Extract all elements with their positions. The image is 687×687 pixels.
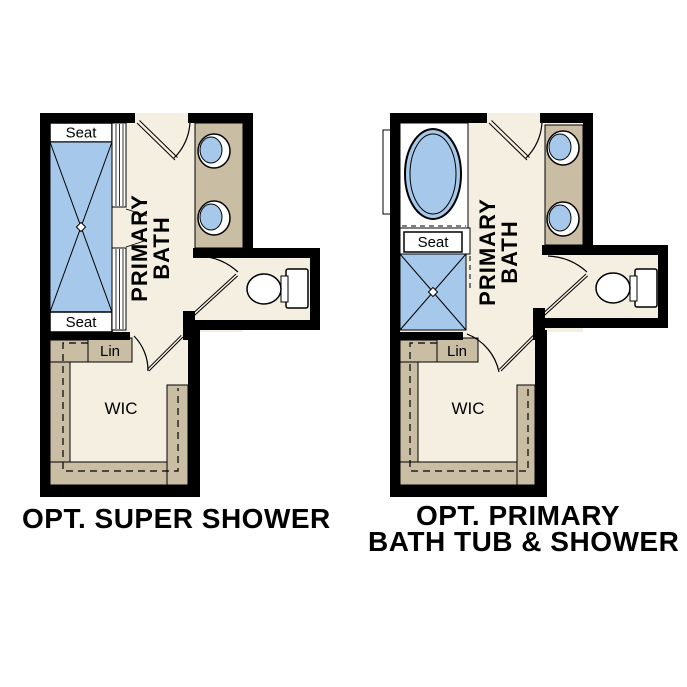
toilet-bowl — [247, 274, 281, 304]
sink-bowl — [200, 204, 222, 230]
entry-doorway — [487, 113, 540, 123]
wic-label: WIC — [451, 399, 484, 418]
toilet-hinge — [281, 276, 288, 302]
toilet-tank — [286, 269, 308, 308]
wall-segment — [583, 113, 593, 255]
floorplan-sheet: Seat Seat Lin WIC PRIMARY BATH — [0, 0, 687, 687]
wic-label: WIC — [104, 399, 137, 418]
wall-segment — [50, 332, 130, 340]
plan-title-super-shower: OPT. SUPER SHOWER — [22, 506, 322, 532]
plan-title-tub-shower: OPT. PRIMARY BATH TUB & SHOWER — [368, 503, 668, 555]
wall-segment — [542, 245, 668, 255]
toilet-hinge — [630, 276, 637, 301]
linen-label: Lin — [447, 343, 467, 360]
wall-segment — [40, 485, 200, 497]
seat-label: Seat — [418, 234, 450, 251]
wall-segment — [400, 332, 463, 340]
toilet-bowl — [596, 273, 630, 303]
wall-segment — [390, 113, 487, 123]
wall-segment — [310, 248, 320, 330]
seat-label: Seat — [66, 125, 98, 142]
vanity-counter — [545, 125, 583, 245]
sink-bowl — [200, 137, 222, 163]
wall-segment — [243, 113, 253, 258]
linen-label: Lin — [100, 343, 120, 360]
wall-segment — [188, 330, 200, 497]
wall-segment — [542, 318, 668, 328]
shower-glass-panel-top — [112, 123, 126, 207]
wall-segment — [193, 320, 320, 330]
plan-title-text: OPT. SUPER SHOWER — [22, 503, 331, 534]
plan-tub-shower: Seat Lin WIC PRIMARY BATH — [383, 113, 668, 497]
bathtub-basin — [405, 129, 461, 219]
wall-segment — [193, 248, 320, 258]
primary-bath-label-line2: BATH — [149, 216, 174, 279]
wall-segment — [390, 113, 400, 497]
sink-bowl — [549, 134, 571, 160]
primary-bath-label-line2: BATH — [497, 220, 522, 283]
wall-segment — [658, 245, 668, 328]
wall-segment — [390, 485, 547, 497]
floorplan-drawing: Seat Seat Lin WIC PRIMARY BATH — [0, 0, 687, 687]
shower-glass-panel-bottom — [112, 248, 126, 330]
seat-label: Seat — [66, 314, 98, 331]
plan-title-line2: BATH TUB & SHOWER — [368, 529, 668, 555]
wall-segment — [40, 113, 135, 123]
wic-shelf-bottom — [400, 462, 535, 485]
wic-doorway — [130, 330, 183, 340]
wall-segment — [535, 330, 547, 497]
wall-segment — [40, 113, 50, 497]
vanity-counter — [195, 123, 243, 248]
toilet-tank — [635, 269, 657, 307]
wic-shelf-right — [517, 385, 535, 485]
entry-doorway — [135, 113, 188, 123]
plan-super-shower: Seat Seat Lin WIC PRIMARY BATH — [40, 113, 320, 497]
sink-bowl — [549, 205, 571, 231]
